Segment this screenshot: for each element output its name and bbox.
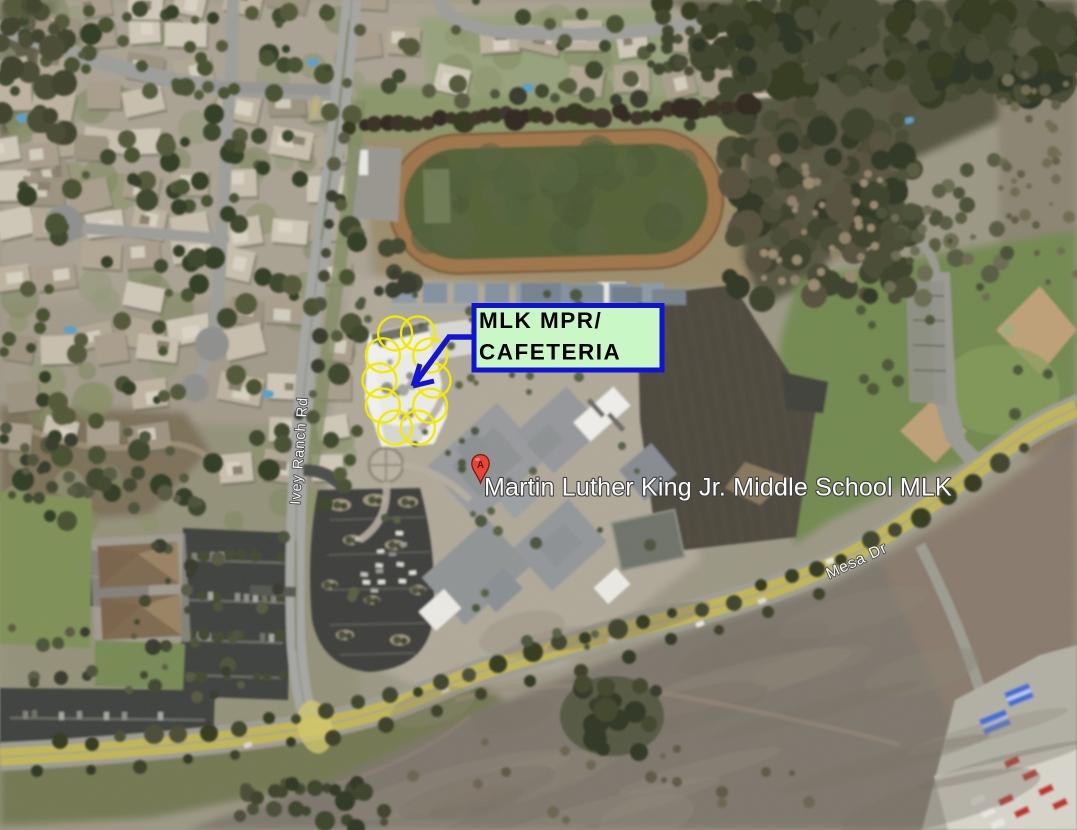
svg-text:CAFETERIA: CAFETERIA [479, 340, 621, 365]
svg-text:Martin Luther King Jr. Middle: Martin Luther King Jr. Middle School MLK [484, 474, 952, 502]
svg-text:A: A [477, 460, 484, 471]
svg-text:MLK MPR/: MLK MPR/ [479, 308, 602, 333]
